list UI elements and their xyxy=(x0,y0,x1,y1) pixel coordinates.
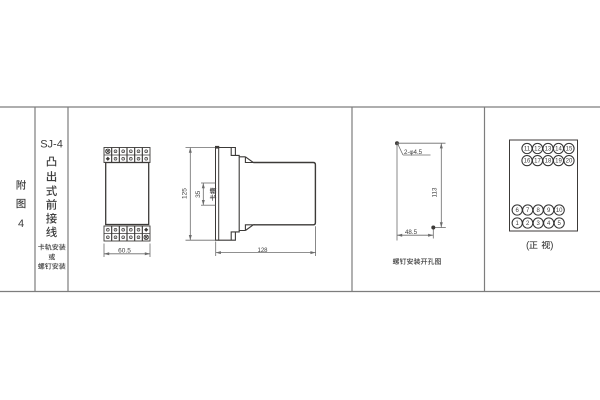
svg-text:15: 15 xyxy=(566,147,573,153)
svg-text:13: 13 xyxy=(545,147,552,153)
svg-text:35: 35 xyxy=(195,190,202,198)
svg-text:10: 10 xyxy=(556,208,563,214)
svg-text:113: 113 xyxy=(432,187,439,197)
svg-text:11: 11 xyxy=(524,147,531,153)
svg-text:19: 19 xyxy=(555,159,562,165)
svg-text:48.5: 48.5 xyxy=(405,229,418,236)
svg-text:16: 16 xyxy=(524,159,531,165)
svg-text:128: 128 xyxy=(257,248,268,254)
svg-text:125: 125 xyxy=(182,188,189,199)
svg-text:17: 17 xyxy=(534,159,541,165)
svg-text:4: 4 xyxy=(18,218,24,230)
svg-text:60.5: 60.5 xyxy=(118,247,131,254)
svg-text:SJ-4: SJ-4 xyxy=(40,139,63,151)
svg-text:2-φ4.5: 2-φ4.5 xyxy=(404,149,423,156)
svg-text:20: 20 xyxy=(566,159,573,165)
svg-text:): ) xyxy=(550,240,553,251)
svg-text:18: 18 xyxy=(545,159,552,165)
svg-text:14: 14 xyxy=(555,147,562,153)
svg-text:12: 12 xyxy=(534,147,541,153)
